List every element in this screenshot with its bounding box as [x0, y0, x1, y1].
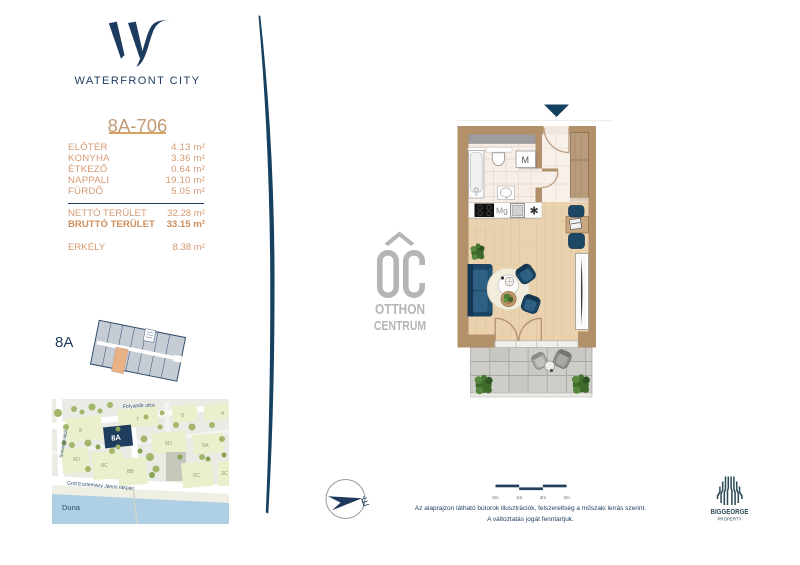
- svg-text:Duna: Duna: [62, 503, 81, 512]
- svg-text:4: 4: [221, 411, 224, 417]
- svg-text:8: 8: [79, 428, 82, 434]
- svg-text:PROPERTY: PROPERTY: [718, 517, 742, 522]
- svg-text:3C: 3C: [221, 471, 228, 477]
- svg-text:7: 7: [136, 417, 139, 423]
- svg-text:8C: 8C: [101, 463, 108, 469]
- svg-text:Mg: Mg: [496, 206, 508, 216]
- svg-text:8A: 8A: [111, 433, 122, 443]
- svg-text:3m: 3m: [563, 495, 570, 500]
- svg-text:5: 5: [181, 413, 184, 419]
- svg-text:1m: 1m: [516, 495, 523, 500]
- svg-text:✱: ✱: [530, 206, 539, 218]
- svg-text:0m: 0m: [492, 495, 499, 500]
- svg-text:6C: 6C: [193, 473, 200, 479]
- svg-text:6D: 6D: [165, 441, 172, 447]
- svg-text:8B: 8B: [127, 469, 134, 475]
- svg-text:CENTRUM: CENTRUM: [374, 318, 426, 333]
- svg-text:M: M: [522, 155, 530, 165]
- svg-text:2m: 2m: [540, 495, 547, 500]
- svg-text:BIGGEORGE: BIGGEORGE: [711, 509, 749, 516]
- svg-text:OTTHON: OTTHON: [375, 302, 425, 318]
- svg-text:6D: 6D: [73, 457, 80, 463]
- svg-text:5A: 5A: [202, 443, 209, 449]
